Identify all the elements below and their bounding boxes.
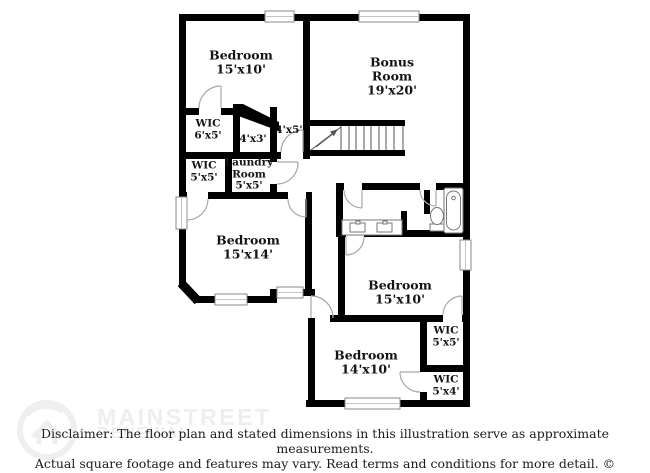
toilet-icon (430, 208, 444, 232)
room-label-bedroom-15x14: Bedroom 15'x14' (216, 233, 280, 261)
room-label-bedroom-top-left: Bedroom 15'x10' (209, 48, 273, 76)
room-label-wic-5x5-left: WIC 5'x5' (190, 160, 217, 183)
stairs (311, 126, 403, 150)
floorplan-drawing (0, 0, 650, 473)
room-label-laundry-room: Laundry Room 5'x5' (221, 158, 277, 193)
disclaimer-line1: Disclaimer: The floor plan and stated di… (0, 427, 650, 457)
room-label-bonus-room: Bonus Room 19'x20' (367, 55, 417, 96)
room-label-wic-5x4: WIC 5'x4' (432, 374, 459, 397)
room-label-closet-4x3: 4'x3' (239, 134, 266, 146)
room-label-bedroom-15x10-right: Bedroom 15'x10' (368, 278, 432, 306)
room-label-wic-5x5-right: WIC 5'x5' (432, 325, 459, 348)
disclaimer-text: Disclaimer: The floor plan and stated di… (0, 427, 650, 473)
disclaimer-line2: Actual square footage and features may v… (0, 457, 650, 473)
room-label-bedroom-14x10: Bedroom 14'x10' (334, 348, 398, 376)
room-label-wic-6x5: WIC 6'x5' (194, 118, 221, 141)
room-label-hall-4x5: 4'x5' (275, 125, 302, 137)
floorplan-page: MAINSTREET RENEWAL (0, 0, 650, 473)
bathtub-icon (444, 188, 463, 233)
vanity-sinks-icon (342, 220, 402, 235)
